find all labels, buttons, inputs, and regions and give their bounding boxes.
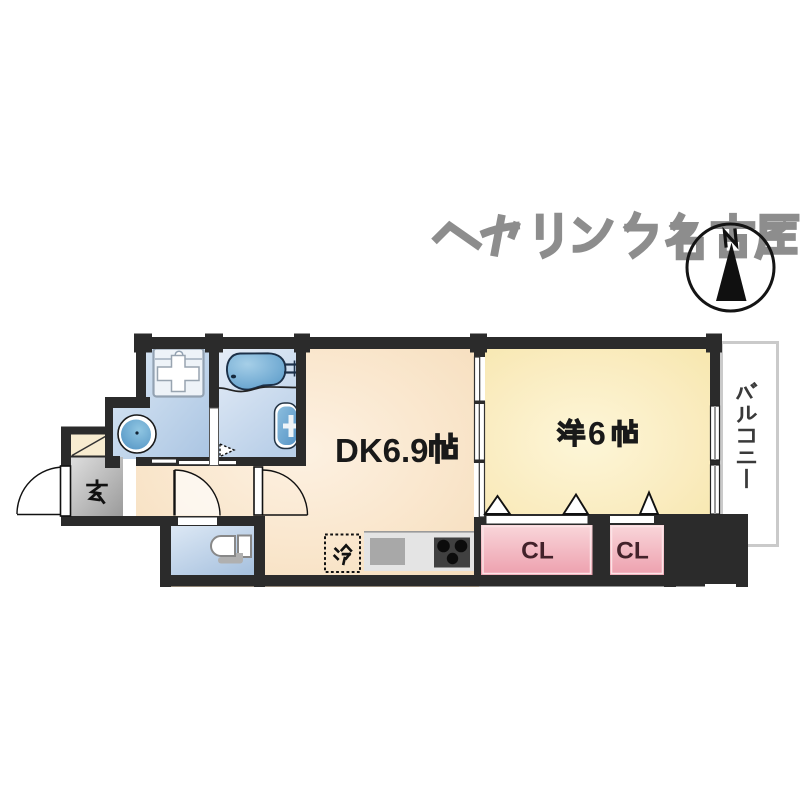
svg-text:6: 6: [588, 416, 606, 452]
svg-text:CL: CL: [521, 538, 554, 565]
svg-text:DK6.9: DK6.9: [335, 432, 429, 469]
svg-text:CL: CL: [616, 538, 649, 565]
